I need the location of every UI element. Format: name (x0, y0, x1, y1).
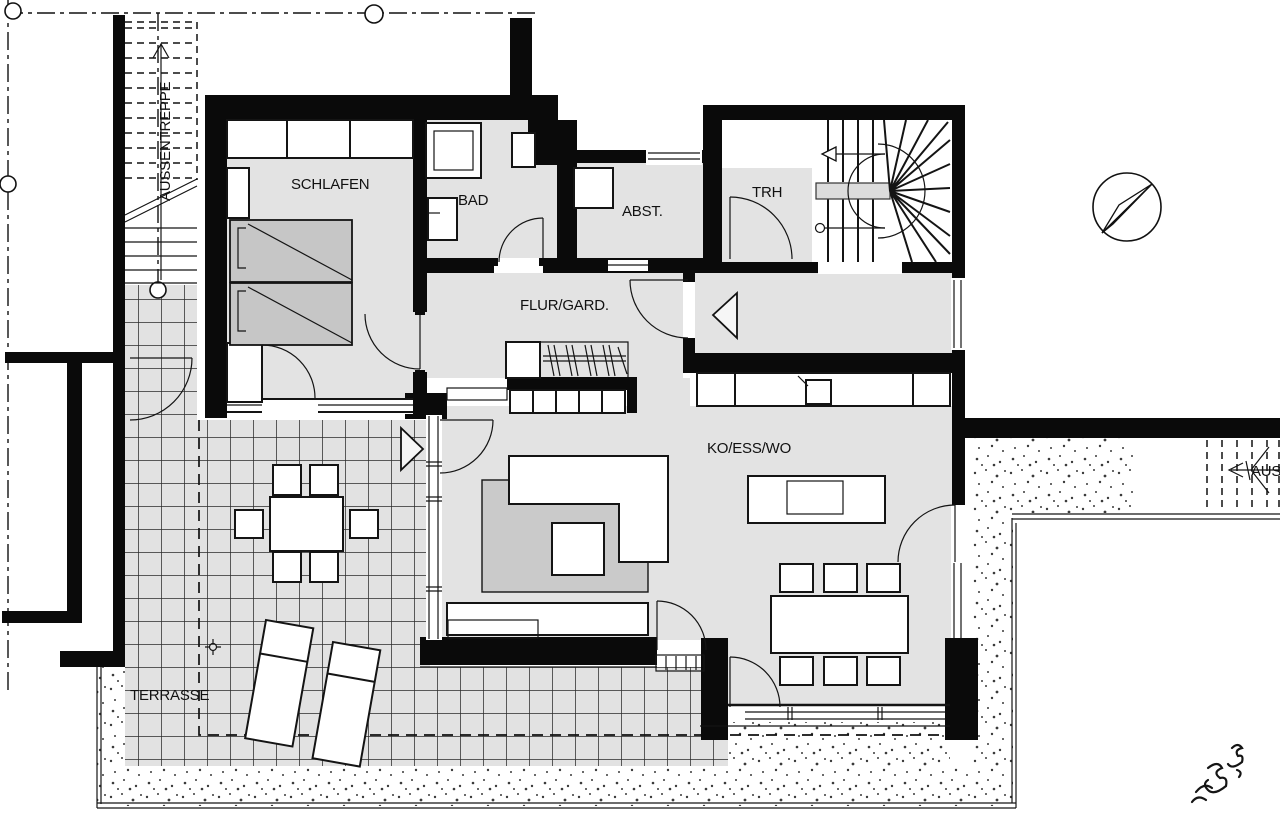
kitchen-counter (697, 373, 950, 406)
label-terrasse: TERRASSE (130, 687, 209, 704)
kitchen-island (748, 476, 885, 523)
chair (310, 552, 338, 582)
label-aussentreppe-right: AUSSENTREPPE (1251, 463, 1280, 480)
toilet (428, 198, 457, 240)
dining-table (771, 596, 908, 653)
room-trh-floor (722, 168, 812, 262)
label-schlafen: SCHLAFEN (291, 176, 369, 193)
chair (310, 465, 338, 495)
axis-marker (0, 176, 16, 192)
double-bed (230, 220, 352, 345)
wardrobe (227, 120, 413, 158)
chair (824, 657, 857, 685)
label-wohnen: KO/ESS/WO (707, 440, 791, 457)
label-bad: BAD (458, 192, 489, 209)
cabinet-row (510, 390, 625, 413)
washbasin (512, 133, 535, 167)
shower (426, 123, 481, 178)
chair (780, 657, 813, 685)
label-trh: TRH (752, 184, 782, 201)
axis-marker (5, 3, 21, 19)
storage-shelf (574, 168, 613, 208)
lowboard (447, 603, 648, 638)
chair (824, 564, 857, 592)
gravel-south-dining (728, 722, 950, 766)
tiles-terrace-south (430, 667, 728, 766)
kitchen-sink (806, 380, 831, 404)
chair (273, 552, 301, 582)
chair (235, 510, 263, 538)
chair (867, 657, 900, 685)
tiles-stair-landing (125, 285, 197, 420)
axis-marker (365, 5, 383, 23)
axis-marker (150, 282, 166, 298)
floorplan-drawing: SCHLAFEN BAD ABST. TRH FLUR/GARD. KO/ESS… (0, 0, 1280, 820)
label-aussentreppe-left: AUSSENTREPPE (157, 82, 174, 201)
label-flur: FLUR/GARD. (520, 297, 609, 314)
dresser (227, 343, 262, 402)
gravel-bottom-band (97, 766, 1013, 806)
chair (273, 465, 301, 495)
closet-shelf (227, 168, 249, 218)
passage-floor (637, 378, 690, 408)
coffee-table (552, 523, 604, 575)
chair (867, 564, 900, 592)
compass-icon (1093, 173, 1161, 241)
room-flur-floor (427, 273, 683, 378)
terrace-table (270, 497, 343, 551)
label-abst: ABST. (622, 203, 663, 220)
chair (780, 564, 813, 592)
gravel-east-wide (1013, 438, 1133, 513)
spiral-stair (816, 120, 951, 262)
floorplan-canvas: SCHLAFEN BAD ABST. TRH FLUR/GARD. KO/ESS… (0, 0, 1280, 820)
handwritten-mark (1192, 745, 1243, 802)
chair (350, 510, 378, 538)
dining-set (771, 564, 908, 685)
